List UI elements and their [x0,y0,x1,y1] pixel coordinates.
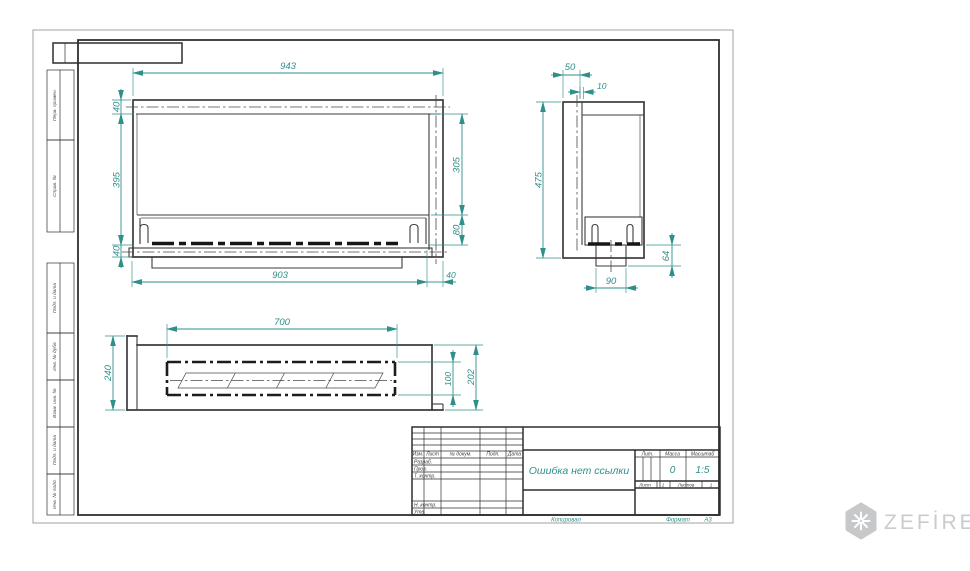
scale-value: 1:5 [696,465,710,476]
stamp-sprav-no: Справ. № [52,175,58,197]
col-izm: Изм. [413,452,424,458]
svg-text:475: 475 [534,171,545,188]
row-approved: Утв. [414,510,425,516]
format-label: Формат [666,518,690,524]
logo-hexagon-icon [847,504,875,538]
sheet-border: Перв. примен. Справ. № Подп. и дата Инв.… [33,30,733,523]
svg-text:202: 202 [466,368,477,386]
format-value: А3 [703,518,712,524]
svg-text:10: 10 [597,81,607,91]
copied-label: Копировал [551,518,581,524]
svg-text:100: 100 [443,372,453,386]
col-list: Лист [425,452,439,458]
svg-text:240: 240 [103,364,114,382]
logo-wordmark: ZEFİRE [884,511,970,534]
zefire-logo: ZEFİRE [847,504,970,538]
stamp-vzam-inv: Взам. инв. № [52,388,58,418]
svg-text:50: 50 [565,62,576,73]
row-tcontrol: Т. контр. [414,474,436,480]
stamp-podp-data-1: Подп. и дата [52,283,58,313]
gost-drawing-sheet: Перв. примен. Справ. № Подп. и дата Инв.… [0,0,970,571]
row-developed: Разраб. [414,460,432,466]
svg-text:903: 903 [272,270,289,281]
svg-text:395: 395 [112,171,123,188]
svg-text:40: 40 [112,101,123,112]
sheet-edge [33,30,733,523]
col-doc: № докум. [449,452,471,458]
col-sign: Подп. [486,452,499,458]
sheets-label: Листов [677,483,695,488]
stamp-inv-dubl: Инв. № дубл. [52,341,58,371]
svg-text:40: 40 [112,245,123,256]
row-ncontrol: Н. контр. [414,503,437,509]
svg-text:64: 64 [661,251,672,262]
svg-text:700: 700 [274,317,291,328]
drawing-canvas: Перв. примен. Справ. № Подп. и дата Инв.… [0,0,970,571]
row-checked: Пров. [414,467,427,473]
svg-text:943: 943 [280,61,297,72]
col-date: Дата [507,452,521,458]
mass-value: 0 [670,465,676,476]
lit-label: Лит. [641,452,654,458]
stamp-perv-primen: Перв. примен. [52,89,58,121]
sheet-label: Лист [638,483,651,488]
stamp-inv-podl: Инв. № подл. [52,479,58,509]
stamp-podp-data-2: Подп. и дата [52,435,58,465]
svg-text:40: 40 [446,270,456,280]
scale-label: Масштаб [691,452,715,458]
svg-text:305: 305 [452,156,463,173]
document-title: Ошибка нет ссылки [529,465,630,477]
svg-text:80: 80 [452,224,463,235]
svg-text:90: 90 [606,276,617,287]
mass-label: Масса [665,452,680,458]
